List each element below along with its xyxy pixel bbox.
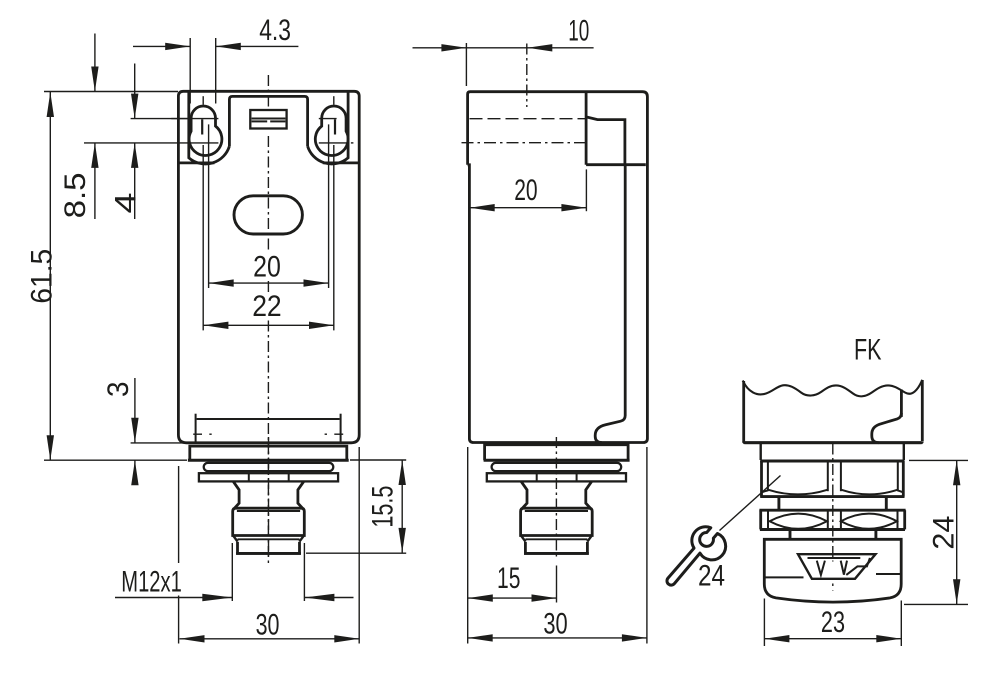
svg-text:30: 30 [543,608,567,641]
svg-text:4.3: 4.3 [259,14,291,47]
svg-text:22: 22 [252,290,282,323]
svg-text:8.5: 8.5 [59,172,92,218]
svg-text:20: 20 [253,250,281,283]
svg-text:61.5: 61.5 [26,249,59,304]
svg-text:23: 23 [821,606,845,639]
svg-text:M12x1: M12x1 [121,565,182,598]
svg-text:20: 20 [514,174,537,207]
svg-text:24: 24 [928,516,961,550]
svg-text:FK: FK [854,334,882,367]
svg-text:3: 3 [102,382,135,398]
svg-text:30: 30 [256,608,280,641]
svg-text:4: 4 [110,193,143,214]
svg-text:24: 24 [698,560,725,593]
svg-text:15: 15 [497,562,520,595]
svg-text:15.5: 15.5 [366,486,399,528]
svg-text:10: 10 [568,15,589,48]
